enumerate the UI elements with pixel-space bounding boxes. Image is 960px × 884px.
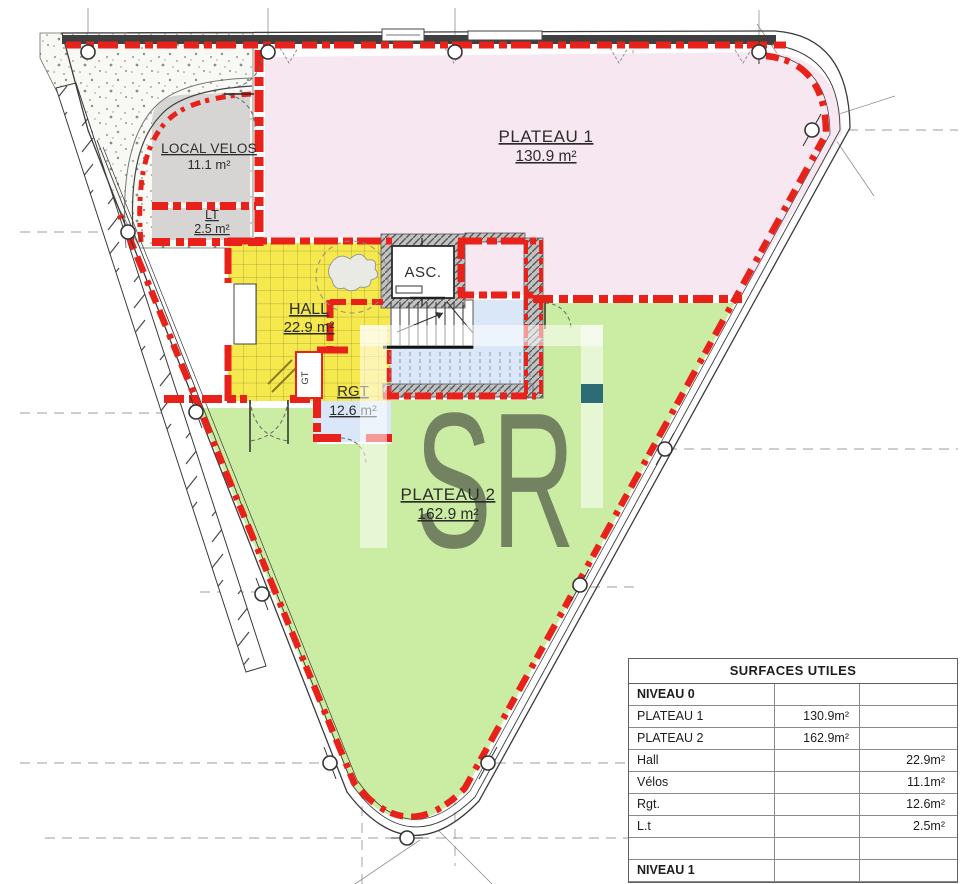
table-cell (775, 750, 860, 771)
table-row: NIVEAU 0 (629, 684, 957, 706)
table-cell: 11.1m² (860, 772, 957, 793)
corridor-zone (458, 238, 533, 295)
watermark-letters: SR (415, 372, 575, 588)
table-row: PLATEAU 2162.9m² (629, 728, 957, 750)
table-cell (860, 860, 957, 881)
table-cell (775, 684, 860, 705)
table-cell (775, 816, 860, 837)
lt-label: LT (205, 208, 219, 222)
table-cell: Hall (629, 750, 775, 771)
table-row (629, 838, 957, 860)
lt-area: 2.5 m² (194, 222, 229, 236)
table-cell (775, 838, 860, 859)
table-row: L.t2.5m² (629, 816, 957, 838)
table-cell (629, 838, 775, 859)
plateau1-label: PLATEAU 1 (499, 127, 594, 146)
surfaces-table-title: SURFACES UTILES (629, 659, 957, 684)
table-cell: NIVEAU 1 (629, 860, 775, 881)
table-cell (860, 684, 957, 705)
table-cell (860, 838, 957, 859)
velos-label: LOCAL VELOS (161, 141, 257, 156)
watermark-teal-square (581, 384, 603, 403)
table-cell: L.t (629, 816, 775, 837)
table-row: Vélos11.1m² (629, 772, 957, 794)
surfaces-table-body: NIVEAU 0PLATEAU 1130.9m²PLATEAU 2162.9m²… (629, 684, 957, 882)
table-cell: Rgt. (629, 794, 775, 815)
gt-label: GT (300, 371, 311, 384)
table-cell: 12.6m² (860, 794, 957, 815)
table-cell: 22.9m² (860, 750, 957, 771)
plateau1-area: 130.9 m² (515, 148, 576, 165)
table-row: Rgt.12.6m² (629, 794, 957, 816)
table-row: PLATEAU 1130.9m² (629, 706, 957, 728)
table-cell (860, 706, 957, 727)
asc-label: ASC. (404, 264, 441, 281)
hall-area: 22.9 m² (284, 319, 335, 336)
table-row: NIVEAU 1 (629, 860, 957, 882)
hall-label: HALL (289, 301, 329, 318)
table-row: Hall22.9m² (629, 750, 957, 772)
table-cell: 130.9m² (775, 706, 860, 727)
table-cell: 2.5m² (860, 816, 957, 837)
table-cell: Vélos (629, 772, 775, 793)
table-cell: PLATEAU 1 (629, 706, 775, 727)
table-cell (775, 772, 860, 793)
table-cell (860, 728, 957, 749)
surfaces-table: SURFACES UTILES NIVEAU 0PLATEAU 1130.9m²… (628, 658, 958, 883)
table-cell (775, 860, 860, 881)
table-cell (775, 794, 860, 815)
table-cell: PLATEAU 2 (629, 728, 775, 749)
table-cell: NIVEAU 0 (629, 684, 775, 705)
floor-plan-page: PLATEAU 1 130.9 m² PLATEAU 2 162.9 m² HA… (0, 0, 960, 884)
velos-area: 11.1 m² (187, 157, 231, 172)
table-cell: 162.9m² (775, 728, 860, 749)
